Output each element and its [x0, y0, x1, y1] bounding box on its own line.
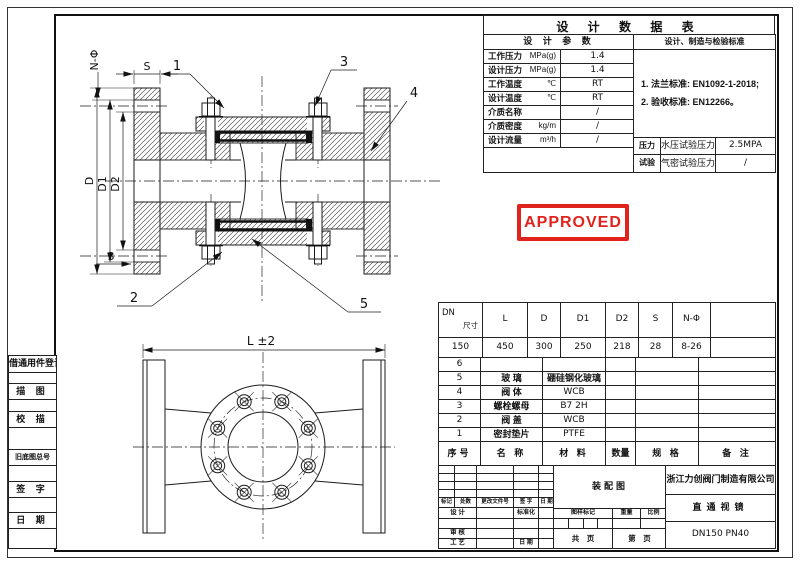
part-spec: [636, 400, 699, 414]
part-material: WCB: [543, 386, 606, 400]
empty-cell: [9, 373, 57, 384]
title-block-revision: 标记 处数 更改文件号 签 字 日 期 设 计 标准化 审 核 工 艺 日 期: [438, 465, 555, 549]
param-value: RT: [561, 78, 635, 92]
test-group-bottom: 试验: [634, 155, 661, 173]
dim-d2-label: D2: [109, 176, 122, 191]
design-standards-table: 设计、制造与检验标准 1. 法兰标准: EN1092-1-2018; 2. 验收…: [633, 34, 776, 173]
dim-value: [711, 338, 776, 359]
bolt: [208, 419, 227, 438]
empty-cell: [455, 490, 477, 498]
section-view: D D1 D2 S N-Φ 3 1 3 4: [80, 49, 440, 312]
part-material: 硼硅钢化玻璃: [543, 372, 606, 386]
empty-cell: [514, 466, 539, 474]
empty-cell: [598, 519, 613, 529]
corner-dn-label: DN: [442, 309, 455, 318]
param-label: 设计流量m³/h: [484, 134, 561, 148]
callout-2: 2: [130, 291, 138, 306]
part-name: [481, 358, 543, 372]
part-note: [699, 414, 776, 428]
end-view: L ±2: [133, 334, 395, 542]
model-designation: DN150 PN40: [666, 522, 776, 549]
sidebar-item-date: 日 期: [9, 513, 57, 529]
total-pages-label: 共 页: [554, 529, 613, 549]
callout-4: 4: [410, 86, 418, 101]
empty-cell: [9, 529, 57, 549]
part-note: [699, 372, 776, 386]
parts-footer-note: 备 注: [699, 442, 776, 466]
empty-cell: [484, 148, 635, 173]
rev-col-label: 标记: [439, 498, 455, 508]
empty-cell: [439, 490, 455, 498]
weight-label: 重量: [613, 509, 641, 519]
test-value: /: [716, 155, 776, 173]
part-no: 2: [439, 414, 481, 428]
sidebar-strip: 借通用件登记 描 图 校 描 旧底图总号 签 字 日 期: [8, 355, 57, 549]
empty-cell: [477, 474, 514, 482]
test-group-top: 压力: [634, 138, 661, 155]
bolt: [272, 483, 291, 502]
part-no: 3: [439, 400, 481, 414]
mark-label: 图样标记: [554, 509, 613, 519]
empty-cell: [514, 474, 539, 482]
empty-cell: [514, 519, 539, 529]
parts-footer-no: 序号: [439, 442, 481, 466]
rev-col-label: 更改文件号: [477, 498, 514, 508]
process-label: 工 艺: [439, 539, 477, 549]
dim-corner-cell: 尺寸 DN: [439, 303, 483, 338]
part-spec: [636, 358, 699, 372]
part-qty: [606, 386, 636, 400]
part-qty: [606, 372, 636, 386]
empty-cell: [9, 400, 57, 412]
empty-cell: [477, 490, 514, 498]
title-block-right: 浙江力创阀门制造有限公司 直通视镜 DN150 PN40: [665, 465, 776, 549]
bolt: [235, 392, 254, 411]
param-label: 介质名称: [484, 106, 561, 120]
design-label: 设 计: [439, 508, 477, 519]
part-no: 6: [439, 358, 481, 372]
check-label: 审 核: [439, 529, 477, 539]
empty-cell: [514, 529, 539, 539]
part-spec: [636, 428, 699, 442]
note-line: 1. 法兰标准: EN1092-1-2018;: [641, 76, 759, 93]
dim-header: D: [528, 303, 561, 338]
standards-header: 设计、制造与检验标准: [634, 35, 776, 50]
title-block-middle: 装配图 图样标记 重量 比例 共 页 第 页: [553, 465, 667, 549]
part-note: [699, 400, 776, 414]
page-number-label: 第 页: [613, 529, 667, 549]
dim-header: D2: [606, 303, 639, 338]
note-line: 2. 验收标准: EN12266。: [641, 94, 739, 111]
end-view-right-flange: [363, 360, 385, 533]
empty-cell: [554, 519, 569, 529]
empty-cell: [439, 466, 455, 474]
part-qty: [606, 414, 636, 428]
dim-value: 450: [483, 338, 528, 359]
part-spec: [636, 386, 699, 400]
empty-cell: [439, 482, 455, 490]
sidebar-item-check-tracing: 校 描: [9, 412, 57, 428]
approved-stamp: APPROVED: [517, 204, 629, 241]
empty-cell: [455, 474, 477, 482]
rev-col-label: 处数: [455, 498, 477, 508]
scale-label: 比例: [641, 509, 667, 519]
dim-length-label: L ±2: [247, 334, 275, 348]
part-name: 阀 盖: [481, 414, 543, 428]
param-label: 介质密度kg/m: [484, 120, 561, 134]
empty-cell: [477, 519, 514, 529]
dim-header: N-Φ: [673, 303, 711, 338]
dim-face-label: 3: [108, 250, 115, 263]
dim-dn-value: 150: [439, 338, 483, 359]
parts-table: 6 5 玻 璃 硼硅钢化玻璃 4 阀 体 WCB 3 螺栓螺母 B7 2H: [438, 357, 776, 466]
param-label: 工作温度℃: [484, 78, 561, 92]
callout-1: 1: [173, 59, 181, 74]
dim-header: L: [483, 303, 528, 338]
dim-value: 8-26: [673, 338, 711, 359]
product-name: 直通视镜: [666, 495, 776, 522]
param-value: /: [561, 134, 635, 148]
part-material: B7 2H: [543, 400, 606, 414]
parts-footer-spec: 规 格: [636, 442, 699, 466]
part-no: 5: [439, 372, 481, 386]
sidebar-item-signature: 签 字: [9, 482, 57, 498]
part-name: 螺栓螺母: [481, 400, 543, 414]
dim-value: 218: [606, 338, 639, 359]
dim-header: D1: [561, 303, 606, 338]
part-qty: [606, 428, 636, 442]
dim-value: 28: [639, 338, 673, 359]
empty-cell: [569, 519, 584, 529]
empty-cell: [439, 519, 477, 529]
param-label: 设计温度℃: [484, 92, 561, 106]
empty-cell: [477, 466, 514, 474]
empty-cell: [455, 482, 477, 490]
callout-5: 5: [360, 297, 368, 312]
part-note: [699, 358, 776, 372]
standardize-label: 标准化: [514, 508, 539, 519]
param-value: 1.4: [561, 50, 635, 64]
empty-cell: [9, 428, 57, 450]
doc-type: 装配图: [554, 466, 667, 509]
empty-cell: [514, 482, 539, 490]
dim-nphi-label: N-Φ: [88, 49, 101, 70]
dim-value: 300: [528, 338, 561, 359]
part-no: 1: [439, 428, 481, 442]
design-params-table: 设 计 参 数 工作压力MPa(g) 1.4 设计压力MPa(g) 1.4 工作…: [483, 34, 635, 173]
dim-header: [711, 303, 776, 338]
empty-cell: [641, 519, 667, 529]
dimension-table: 尺寸 DN L D D1 D2 S N-Φ 150 450 300 250 21…: [438, 302, 776, 359]
test-label: 气密试验压力 MPa(g): [661, 155, 716, 173]
parts-footer-material: 材 料: [543, 442, 606, 466]
dim-s-label: S: [144, 60, 151, 73]
assembly-drawing: D D1 D2 S N-Φ 3 1 3 4: [60, 25, 452, 545]
part-note: [699, 428, 776, 442]
empty-cell: [439, 474, 455, 482]
part-name: 密封垫片: [481, 428, 543, 442]
corner-size-label: 尺寸: [463, 322, 478, 330]
empty-cell: [9, 466, 57, 482]
bolt: [208, 456, 227, 475]
empty-cell: [477, 529, 514, 539]
end-view-left-flange: [143, 360, 165, 533]
empty-cell: [584, 519, 598, 529]
dim-d1-label: D1: [96, 176, 109, 191]
sidebar-item-common-parts: 借通用件登记: [9, 356, 57, 373]
part-no: 4: [439, 386, 481, 400]
sidebar-item-old-drawing-no: 旧底图总号: [9, 450, 57, 466]
part-qty: [606, 358, 636, 372]
dim-d-label: D: [83, 177, 96, 185]
test-label: 水压试验压力 MPa(g): [661, 138, 716, 155]
sidebar-item-tracing: 描 图: [9, 384, 57, 400]
part-material: [543, 358, 606, 372]
param-value: RT: [561, 92, 635, 106]
empty-cell: [477, 482, 514, 490]
part-material: PTFE: [543, 428, 606, 442]
empty-cell: [613, 519, 641, 529]
dim-header: S: [639, 303, 673, 338]
param-value: /: [561, 120, 635, 134]
part-note: [699, 386, 776, 400]
part-name: 玻 璃: [481, 372, 543, 386]
part-material: WCB: [543, 414, 606, 428]
standards-notes: 1. 法兰标准: EN1092-1-2018; 2. 验收标准: EN12266…: [634, 50, 776, 138]
bolt: [299, 456, 318, 475]
drawing-sheet: D D1 D2 S N-Φ 3 1 3 4: [0, 0, 800, 564]
part-qty: [606, 400, 636, 414]
param-value: 1.4: [561, 64, 635, 78]
empty-cell: [477, 508, 514, 519]
part-spec: [636, 372, 699, 386]
part-name: 阀 体: [481, 386, 543, 400]
empty-cell: [477, 539, 514, 549]
empty-cell: [514, 490, 539, 498]
test-value: 2.5MPA: [716, 138, 776, 155]
parts-footer-name: 名 称: [481, 442, 543, 466]
callout-3: 3: [340, 55, 348, 70]
date-label: 日 期: [514, 539, 539, 549]
rev-col-label: 签 字: [514, 498, 539, 508]
bolt: [299, 419, 318, 438]
empty-cell: [455, 466, 477, 474]
bolt: [272, 392, 291, 411]
empty-cell: [9, 498, 57, 513]
parts-footer-qty: 数量: [606, 442, 636, 466]
param-label: 工作压力MPa(g): [484, 50, 561, 64]
part-spec: [636, 414, 699, 428]
company-name: 浙江力创阀门制造有限公司: [666, 466, 776, 495]
dim-value: 250: [561, 338, 606, 359]
bolt: [235, 483, 254, 502]
param-label: 设计压力MPa(g): [484, 64, 561, 78]
params-header: 设 计 参 数: [484, 35, 635, 50]
param-value: /: [561, 106, 635, 120]
